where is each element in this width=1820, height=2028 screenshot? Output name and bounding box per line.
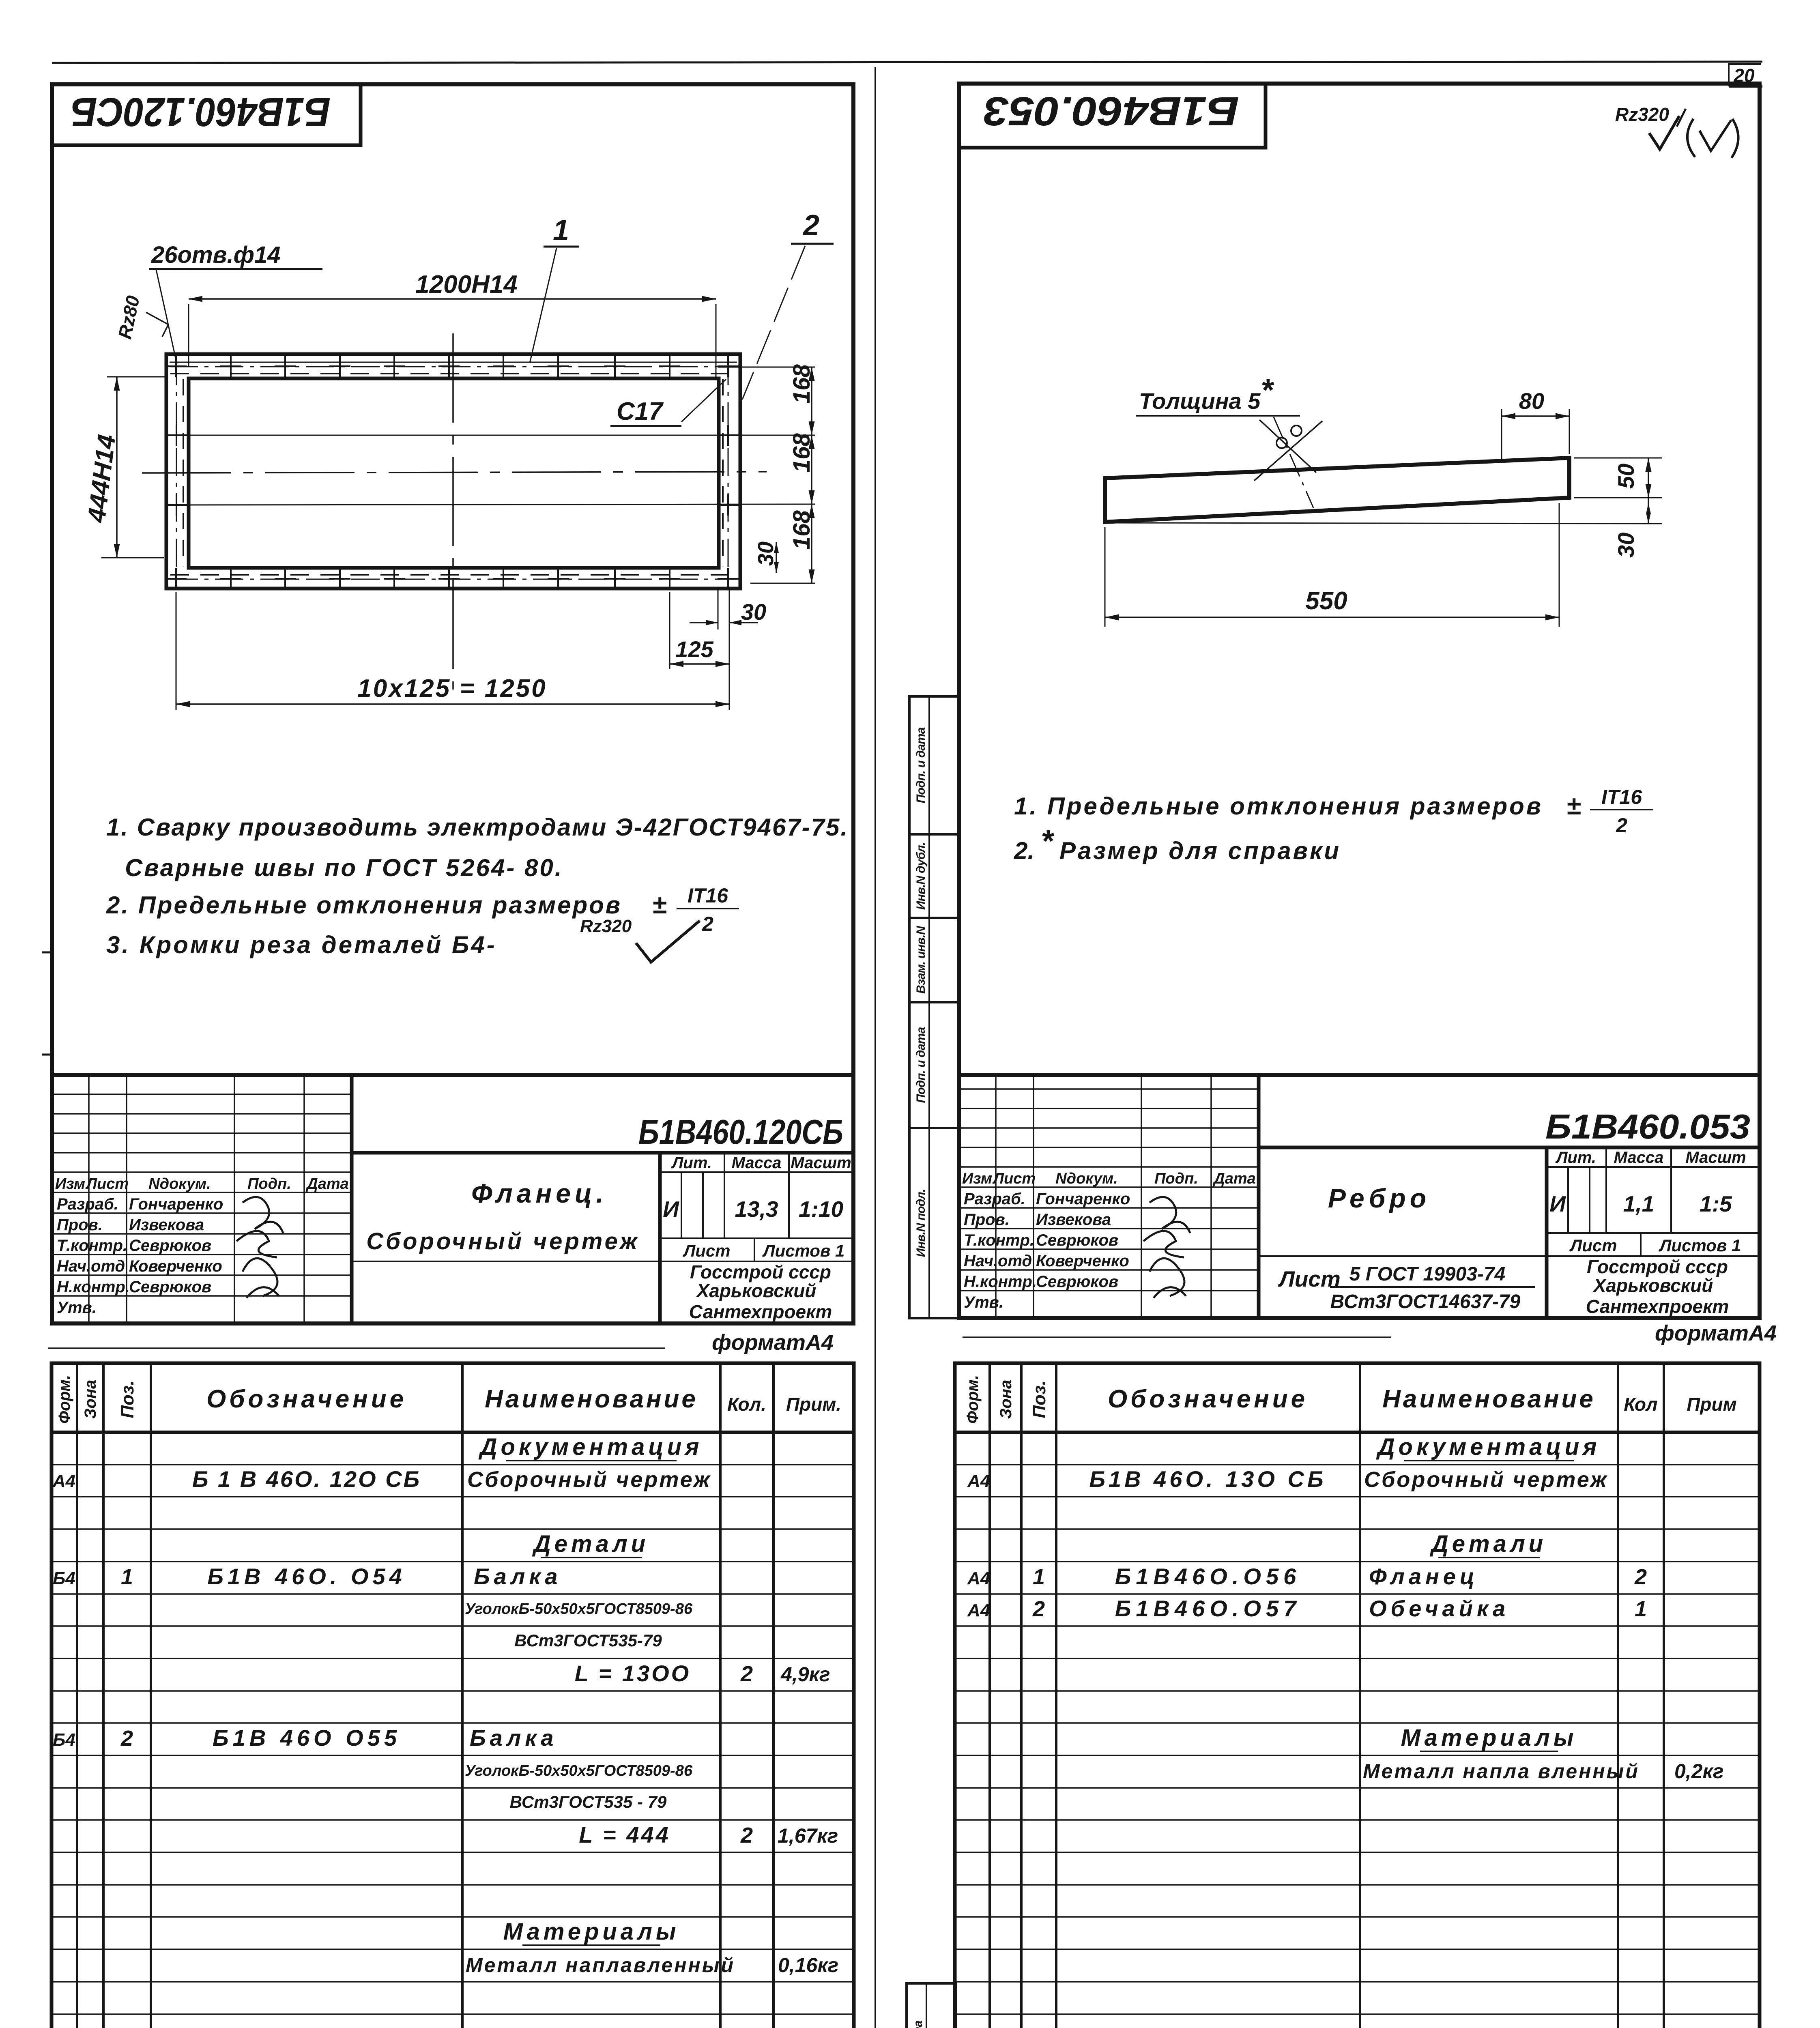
svg-text:Сантехпроект: Сантехпроект [1586,1296,1729,1317]
svg-text:Детали: Детали [1429,1531,1547,1557]
svg-text:Б4: Б4 [53,1568,75,1588]
svg-text:Обозначение: Обозначение [1108,1385,1308,1413]
svg-text:Инв.N дубл.: Инв.N дубл. [914,842,928,910]
svg-text:Обозначение: Обозначение [206,1385,407,1413]
svg-text:Харьковский: Харьковский [696,1280,817,1301]
svg-text:Б1В 46О. 13О СБ: Б1В 46О. 13О СБ [1089,1466,1326,1492]
svg-text:1,1: 1,1 [1623,1191,1654,1216]
svg-text:Лист: Лист [682,1241,730,1260]
svg-text:Лист: Лист [1569,1236,1617,1255]
svg-text:А4: А4 [967,1471,990,1491]
svg-text:2: 2 [120,1726,133,1751]
svg-text:Документация: Документация [478,1434,703,1460]
svg-text:Б1В460.053: Б1В460.053 [984,88,1239,134]
svg-text:1: 1 [1033,1565,1045,1589]
svg-text:А4: А4 [967,1568,990,1588]
svg-text:Извекова: Извекова [129,1216,204,1234]
svg-text:±: ± [1566,791,1581,820]
svg-text:А4: А4 [52,1471,75,1491]
svg-text:А4: А4 [967,1600,990,1620]
svg-text:Б1В 46О О55: Б1В 46О О55 [213,1725,401,1751]
svg-text:Б1В 46О. О54: Б1В 46О. О54 [207,1564,406,1589]
svg-text:30: 30 [741,599,766,625]
svg-text:Утв.: Утв. [57,1299,97,1317]
svg-text:1. Сварку производить электр: 1. Сварку производить электродами Э-42ГО… [106,814,849,841]
svg-text:Б1В46О.О56: Б1В46О.О56 [1115,1564,1301,1589]
svg-text:L = 13ОО: L = 13ОО [575,1661,691,1686]
svg-text:Изм: Изм [55,1175,85,1192]
svg-text:125: 125 [675,636,713,662]
svg-text:Поз.: Поз. [118,1380,138,1418]
svg-text:Нач.отд: Нач.отд [57,1257,125,1275]
svg-text:Детали: Детали [532,1531,649,1557]
svg-text:168: 168 [789,510,815,550]
svg-text:Подп. и дата: Подп. и дата [914,727,928,803]
svg-text:Зона: Зона [82,1380,99,1419]
svg-text:Б1В460.120СБ: Б1В460.120СБ [71,89,331,135]
svg-text:2: 2 [802,209,819,242]
svg-text:Б1В460.053: Б1В460.053 [1545,1108,1750,1146]
svg-text:Форм.: Форм. [964,1375,982,1424]
svg-text:4,9кг: 4,9кг [780,1663,830,1686]
svg-text:*: * [1041,823,1055,859]
svg-text:Кол.: Кол. [727,1394,766,1415]
svg-text:И: И [1549,1191,1566,1216]
svg-text:1,67кг: 1,67кг [778,1824,838,1847]
svg-text:Rz320: Rz320 [1615,104,1669,125]
svg-text:Подп. и дата: Подп. и дата [914,1027,928,1103]
svg-text:Севрюков: Севрюков [1036,1231,1118,1249]
svg-text:1200Н14: 1200Н14 [415,271,518,299]
svg-text:Лист: Лист [992,1170,1036,1187]
svg-text:Форм.: Форм. [56,1375,73,1424]
svg-text:Металл напла вленный: Металл напла вленный [1363,1760,1640,1783]
svg-text:Утв.: Утв. [964,1293,1003,1311]
svg-text:Лист: Лист [85,1175,129,1192]
svg-text:Разраб.: Разраб. [57,1195,118,1213]
svg-text:Балка: Балка [470,1725,558,1751]
svg-text:Севрюков: Севрюков [129,1278,211,1296]
svg-text:Масшт: Масшт [1685,1149,1746,1167]
svg-text:Нач.отд: Нач.отд [964,1252,1032,1270]
svg-text:Сборочный чертеж: Сборочный чертеж [467,1467,711,1492]
svg-text:1: 1 [553,214,569,247]
svg-text:УголокБ-50х50х5ГОСТ8509-86: УголокБ-50х50х5ГОСТ8509-86 [465,1600,693,1618]
svg-text:Фланец.: Фланец. [471,1178,608,1208]
svg-text:Б1В46О.О57: Б1В46О.О57 [1115,1596,1301,1621]
svg-text:2.: 2. [1014,837,1034,864]
svg-text:Севрюков: Севрюков [1036,1273,1118,1291]
svg-text:13,3: 13,3 [735,1197,778,1222]
svg-text:L = 444: L = 444 [579,1822,670,1848]
svg-text:Поз.: Поз. [1029,1380,1049,1418]
svg-text:Б4: Б4 [53,1730,75,1750]
svg-text:Сантехпроект: Сантехпроект [689,1301,832,1322]
svg-text:30: 30 [754,541,778,566]
svg-text:Гончаренко: Гончаренко [1036,1190,1130,1208]
svg-text:Наименование: Наименование [485,1385,698,1413]
svg-text:IT16: IT16 [688,884,728,907]
svg-text:Лит.: Лит. [1555,1149,1596,1167]
svg-text:Т.контр.: Т.контр. [57,1237,127,1255]
svg-text:Разраб.: Разраб. [964,1190,1025,1208]
svg-text:Масса: Масса [1614,1149,1664,1167]
svg-text:Подп.: Подп. [1154,1170,1198,1187]
svg-text:ВСт3ГОСТ535-79: ВСт3ГОСТ535-79 [514,1631,662,1650]
svg-text:С17: С17 [617,397,664,425]
svg-text:2: 2 [702,913,713,935]
svg-text:444Н14: 444Н14 [82,433,121,525]
svg-text:Кол: Кол [1624,1394,1657,1415]
svg-text:Наименование: Наименование [1382,1385,1596,1413]
svg-text:Подп.: Подп. [247,1175,291,1192]
svg-text:Ребро: Ребро [1328,1183,1430,1213]
svg-text:форматА4: форматА4 [712,1330,834,1355]
svg-text:Севрюков: Севрюков [129,1237,211,1255]
svg-text:2: 2 [1616,814,1627,837]
svg-text:Обечайка: Обечайка [1369,1596,1509,1621]
svg-text:Коверченко: Коверченко [1036,1252,1129,1270]
svg-text:ВСт3ГОСТ14637-79: ВСт3ГОСТ14637-79 [1330,1291,1521,1313]
svg-text:1:5: 1:5 [1700,1191,1732,1216]
svg-text:±: ± [652,890,666,919]
svg-text:Коверченко: Коверченко [129,1257,222,1275]
svg-text:2: 2 [1634,1565,1647,1589]
svg-text:УголокБ-50x50x5ГОСТ8509-86: УголокБ-50x50x5ГОСТ8509-86 [465,1762,693,1779]
svg-text:Н.контр.: Н.контр. [964,1273,1037,1291]
svg-text:Размер для справки: Размер для справки [1059,837,1341,864]
svg-text:2: 2 [740,1823,753,1848]
svg-text:Rz80: Rz80 [114,294,144,341]
svg-text:Масса: Масса [732,1154,782,1172]
svg-text:Зона: Зона [997,1380,1015,1419]
svg-text:Сборочный чертеж: Сборочный чертеж [366,1228,640,1255]
svg-text:Материалы: Материалы [1401,1725,1577,1751]
svg-text:Изм: Изм [962,1170,992,1187]
svg-text:Сварные швы по ГОСТ 5264- 8: Сварные швы по ГОСТ 5264- 80. [125,854,563,881]
svg-text:80: 80 [1519,388,1544,414]
svg-text:Листов 1: Листов 1 [762,1241,845,1260]
svg-text:Госстрой ссср: Госстрой ссср [690,1261,831,1283]
svg-text:Н.контр.: Н.контр. [57,1278,130,1296]
svg-text:50: 50 [1613,464,1639,489]
svg-text:2: 2 [1032,1597,1045,1621]
svg-text:Инв.N подл.: Инв.N подл. [914,1189,928,1257]
svg-text:30: 30 [1613,533,1639,558]
svg-text:Документация: Документация [1376,1434,1601,1460]
svg-text:Листов 1: Листов 1 [1659,1236,1741,1255]
svg-text:2: 2 [740,1662,753,1686]
svg-text:5 ГОСТ 19903-74: 5 ГОСТ 19903-74 [1349,1263,1506,1285]
svg-text:3. Кромки реза деталей Б4-: 3. Кромки реза деталей Б4- [106,931,497,958]
svg-text:Nдокум.: Nдокум. [148,1175,211,1192]
svg-text:1: 1 [1635,1597,1647,1621]
svg-text:Прим: Прим [1687,1394,1736,1415]
svg-text:550: 550 [1305,587,1347,615]
svg-text:Nдокум.: Nдокум. [1055,1170,1118,1187]
svg-text:Пров.: Пров. [964,1211,1010,1229]
svg-text:10x125 = 1250: 10x125 = 1250 [357,675,547,702]
svg-text:*: * [1261,372,1274,408]
svg-text:Прим.: Прим. [786,1394,841,1415]
svg-text:IT16: IT16 [1601,786,1642,808]
svg-text:Материалы: Материалы [503,1918,680,1945]
svg-text:Взам. инв.N: Взам. инв.N [914,926,928,994]
svg-text:Гончаренко: Гончаренко [129,1195,223,1213]
svg-text:Металл наплавленный: Металл наплавленный [466,1954,735,1976]
svg-text:26отв.ф14: 26отв.ф14 [151,242,281,268]
svg-text:Б1В460.120СБ: Б1В460.120СБ [638,1113,843,1151]
svg-text:Извекова: Извекова [1036,1211,1111,1229]
svg-text:Толщина 5: Толщина 5 [1139,388,1261,414]
svg-text:Сборочный чертеж: Сборочный чертеж [1364,1467,1608,1492]
svg-text:Подп. и дата: Подп. и дата [911,2021,925,2028]
svg-text:0,2кг: 0,2кг [1674,1760,1724,1783]
svg-text:Т.контр.: Т.контр. [964,1231,1034,1249]
svg-text:Лит.: Лит. [671,1154,712,1172]
svg-text:1. Предельные отклонения раз: 1. Предельные отклонения размеров [1014,793,1543,820]
svg-text:И: И [663,1197,679,1222]
svg-text:Фланец: Фланец [1369,1564,1478,1589]
svg-text:168: 168 [789,433,815,473]
svg-text:2. Предельные отклонения раз: 2. Предельные отклонения размеров [106,892,622,919]
svg-text:Харьковский: Харьковский [1592,1275,1713,1296]
svg-text:Пров.: Пров. [57,1216,103,1234]
svg-text:1:10: 1:10 [799,1197,843,1222]
svg-text:0,16кг: 0,16кг [778,1954,838,1976]
svg-text:Балка: Балка [474,1564,562,1589]
svg-text:Госстрой ссср: Госстрой ссср [1587,1256,1728,1277]
svg-text:форматА4: форматА4 [1655,1321,1777,1345]
svg-text:1: 1 [121,1565,133,1589]
svg-text:Б 1 В 46О. 12О СБ: Б 1 В 46О. 12О СБ [192,1466,421,1492]
svg-text:Rz320: Rz320 [580,916,632,936]
svg-text:Масшт: Масшт [791,1154,851,1172]
svg-text:ВСт3ГОСТ535 - 79: ВСт3ГОСТ535 - 79 [510,1792,667,1811]
svg-text:Дата: Дата [305,1175,349,1192]
svg-text:Дата: Дата [1212,1170,1256,1187]
svg-text:168: 168 [789,364,815,404]
